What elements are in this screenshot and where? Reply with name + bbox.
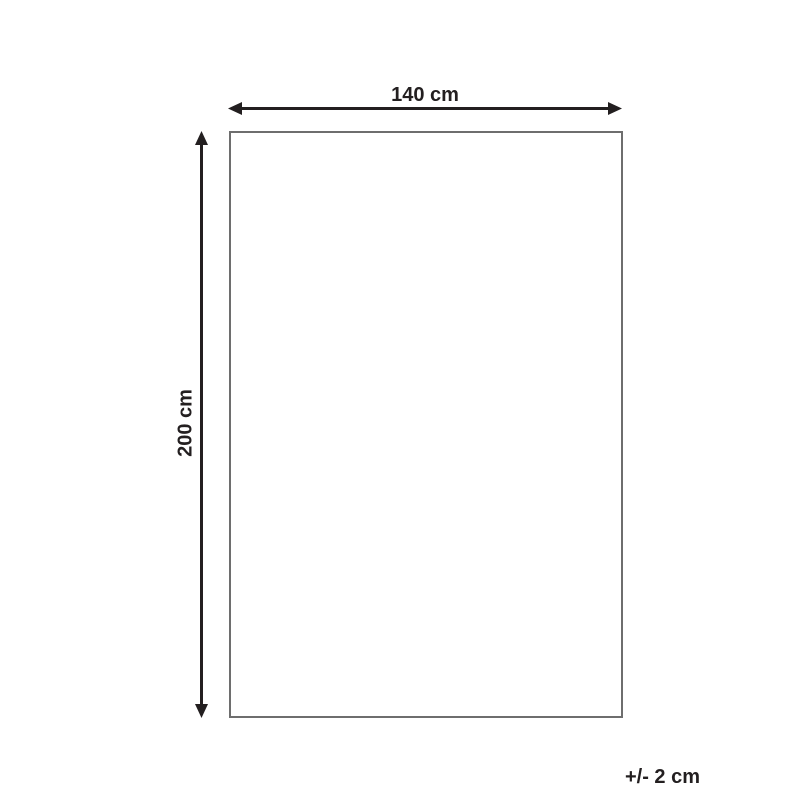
dimension-diagram: 140 cm 200 cm +/- 2 cm — [0, 0, 800, 800]
tolerance-label: +/- 2 cm — [625, 766, 700, 789]
width-dimension-label: 140 cm — [228, 84, 622, 107]
product-outline — [229, 131, 623, 718]
height-dimension-label: 200 cm — [175, 389, 198, 457]
